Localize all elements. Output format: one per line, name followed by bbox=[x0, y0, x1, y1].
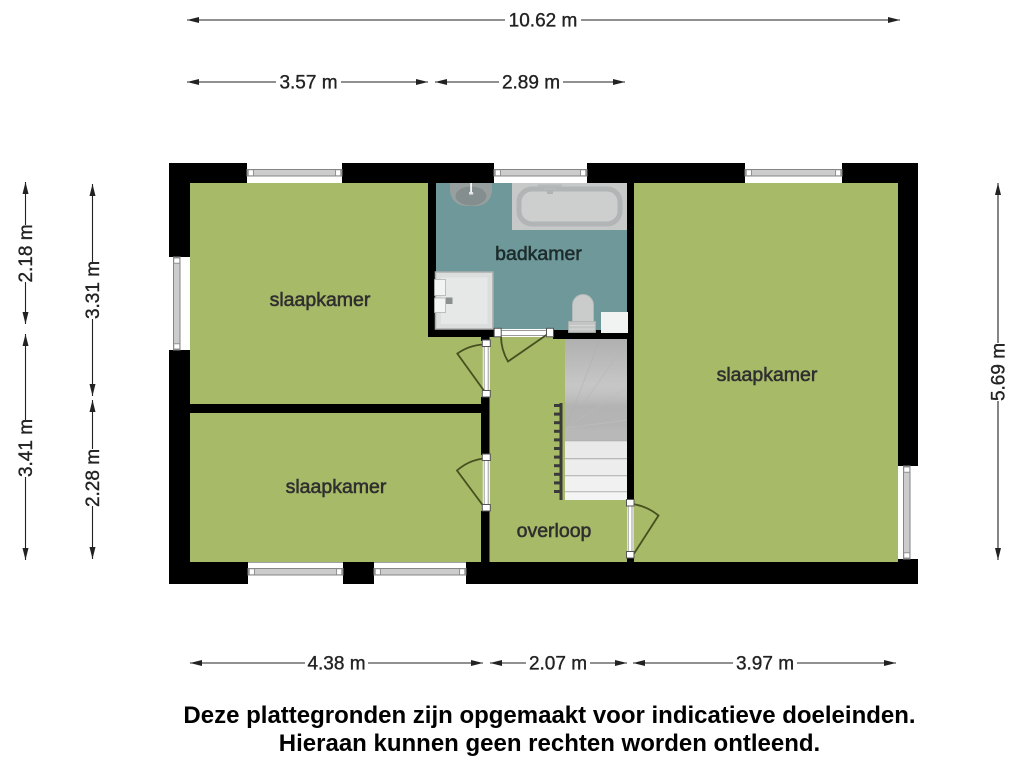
svg-text:2.18 m: 2.18 m bbox=[16, 224, 37, 282]
svg-text:badkamer: badkamer bbox=[495, 243, 582, 265]
svg-text:Hieraan kunnen geen rechten wo: Hieraan kunnen geen rechten worden ontle… bbox=[279, 730, 820, 757]
svg-text:slaapkamer: slaapkamer bbox=[270, 289, 371, 311]
svg-text:10.62 m: 10.62 m bbox=[509, 11, 578, 32]
svg-text:3.97 m: 3.97 m bbox=[736, 654, 794, 675]
svg-text:3.41 m: 3.41 m bbox=[16, 419, 37, 477]
svg-text:2.28 m: 2.28 m bbox=[83, 449, 104, 507]
svg-text:2.07 m: 2.07 m bbox=[529, 654, 587, 675]
svg-text:slaapkamer: slaapkamer bbox=[717, 364, 818, 386]
svg-text:5.69 m: 5.69 m bbox=[989, 343, 1010, 401]
svg-text:slaapkamer: slaapkamer bbox=[286, 476, 387, 498]
svg-text:2.89 m: 2.89 m bbox=[502, 73, 560, 94]
svg-text:overloop: overloop bbox=[517, 520, 592, 542]
svg-text:4.38 m: 4.38 m bbox=[307, 654, 365, 675]
svg-text:3.31 m: 3.31 m bbox=[83, 261, 104, 319]
svg-text:Deze plattegronden zijn opgema: Deze plattegronden zijn opgemaakt voor i… bbox=[183, 702, 915, 729]
svg-text:3.57 m: 3.57 m bbox=[279, 73, 337, 94]
